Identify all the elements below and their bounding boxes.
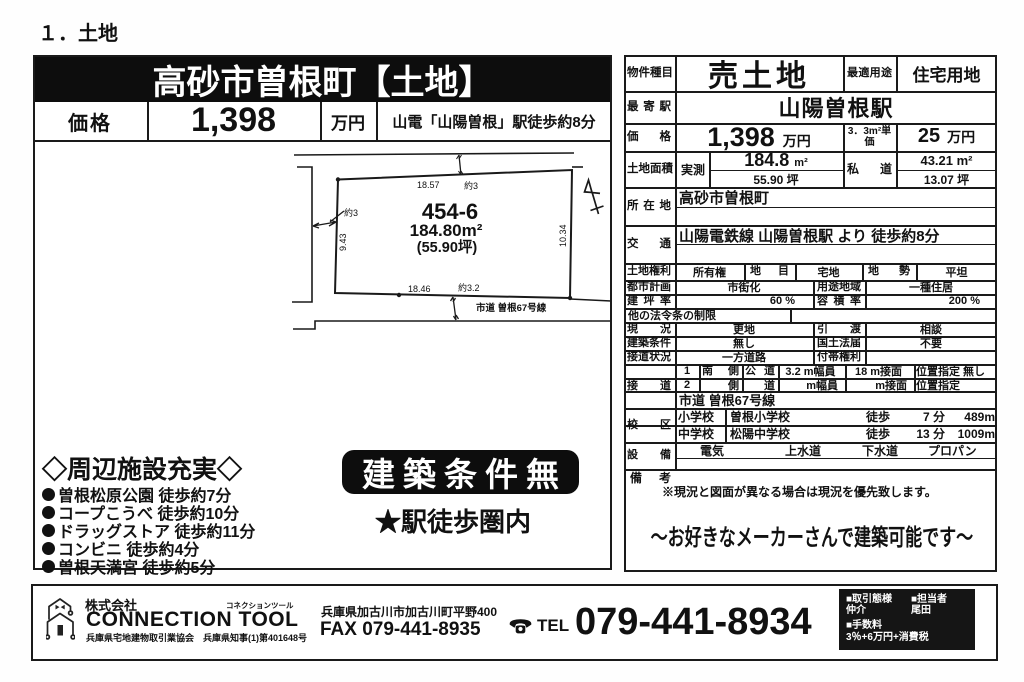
- svg-text:9.43: 9.43: [338, 233, 348, 251]
- svg-text:約3.2: 約3.2: [458, 282, 480, 293]
- svg-text:約3: 約3: [464, 180, 478, 191]
- svg-text:18.57: 18.57: [417, 180, 440, 190]
- svg-text:約3: 約3: [344, 207, 358, 218]
- svg-text:(55.90坪): (55.90坪): [417, 239, 478, 256]
- svg-text:18.46: 18.46: [408, 284, 431, 294]
- svg-text:184.80m²: 184.80m²: [410, 221, 483, 240]
- svg-text:市道 曽根67号線: 市道 曽根67号線: [476, 302, 547, 314]
- svg-text:10.34: 10.34: [558, 224, 568, 247]
